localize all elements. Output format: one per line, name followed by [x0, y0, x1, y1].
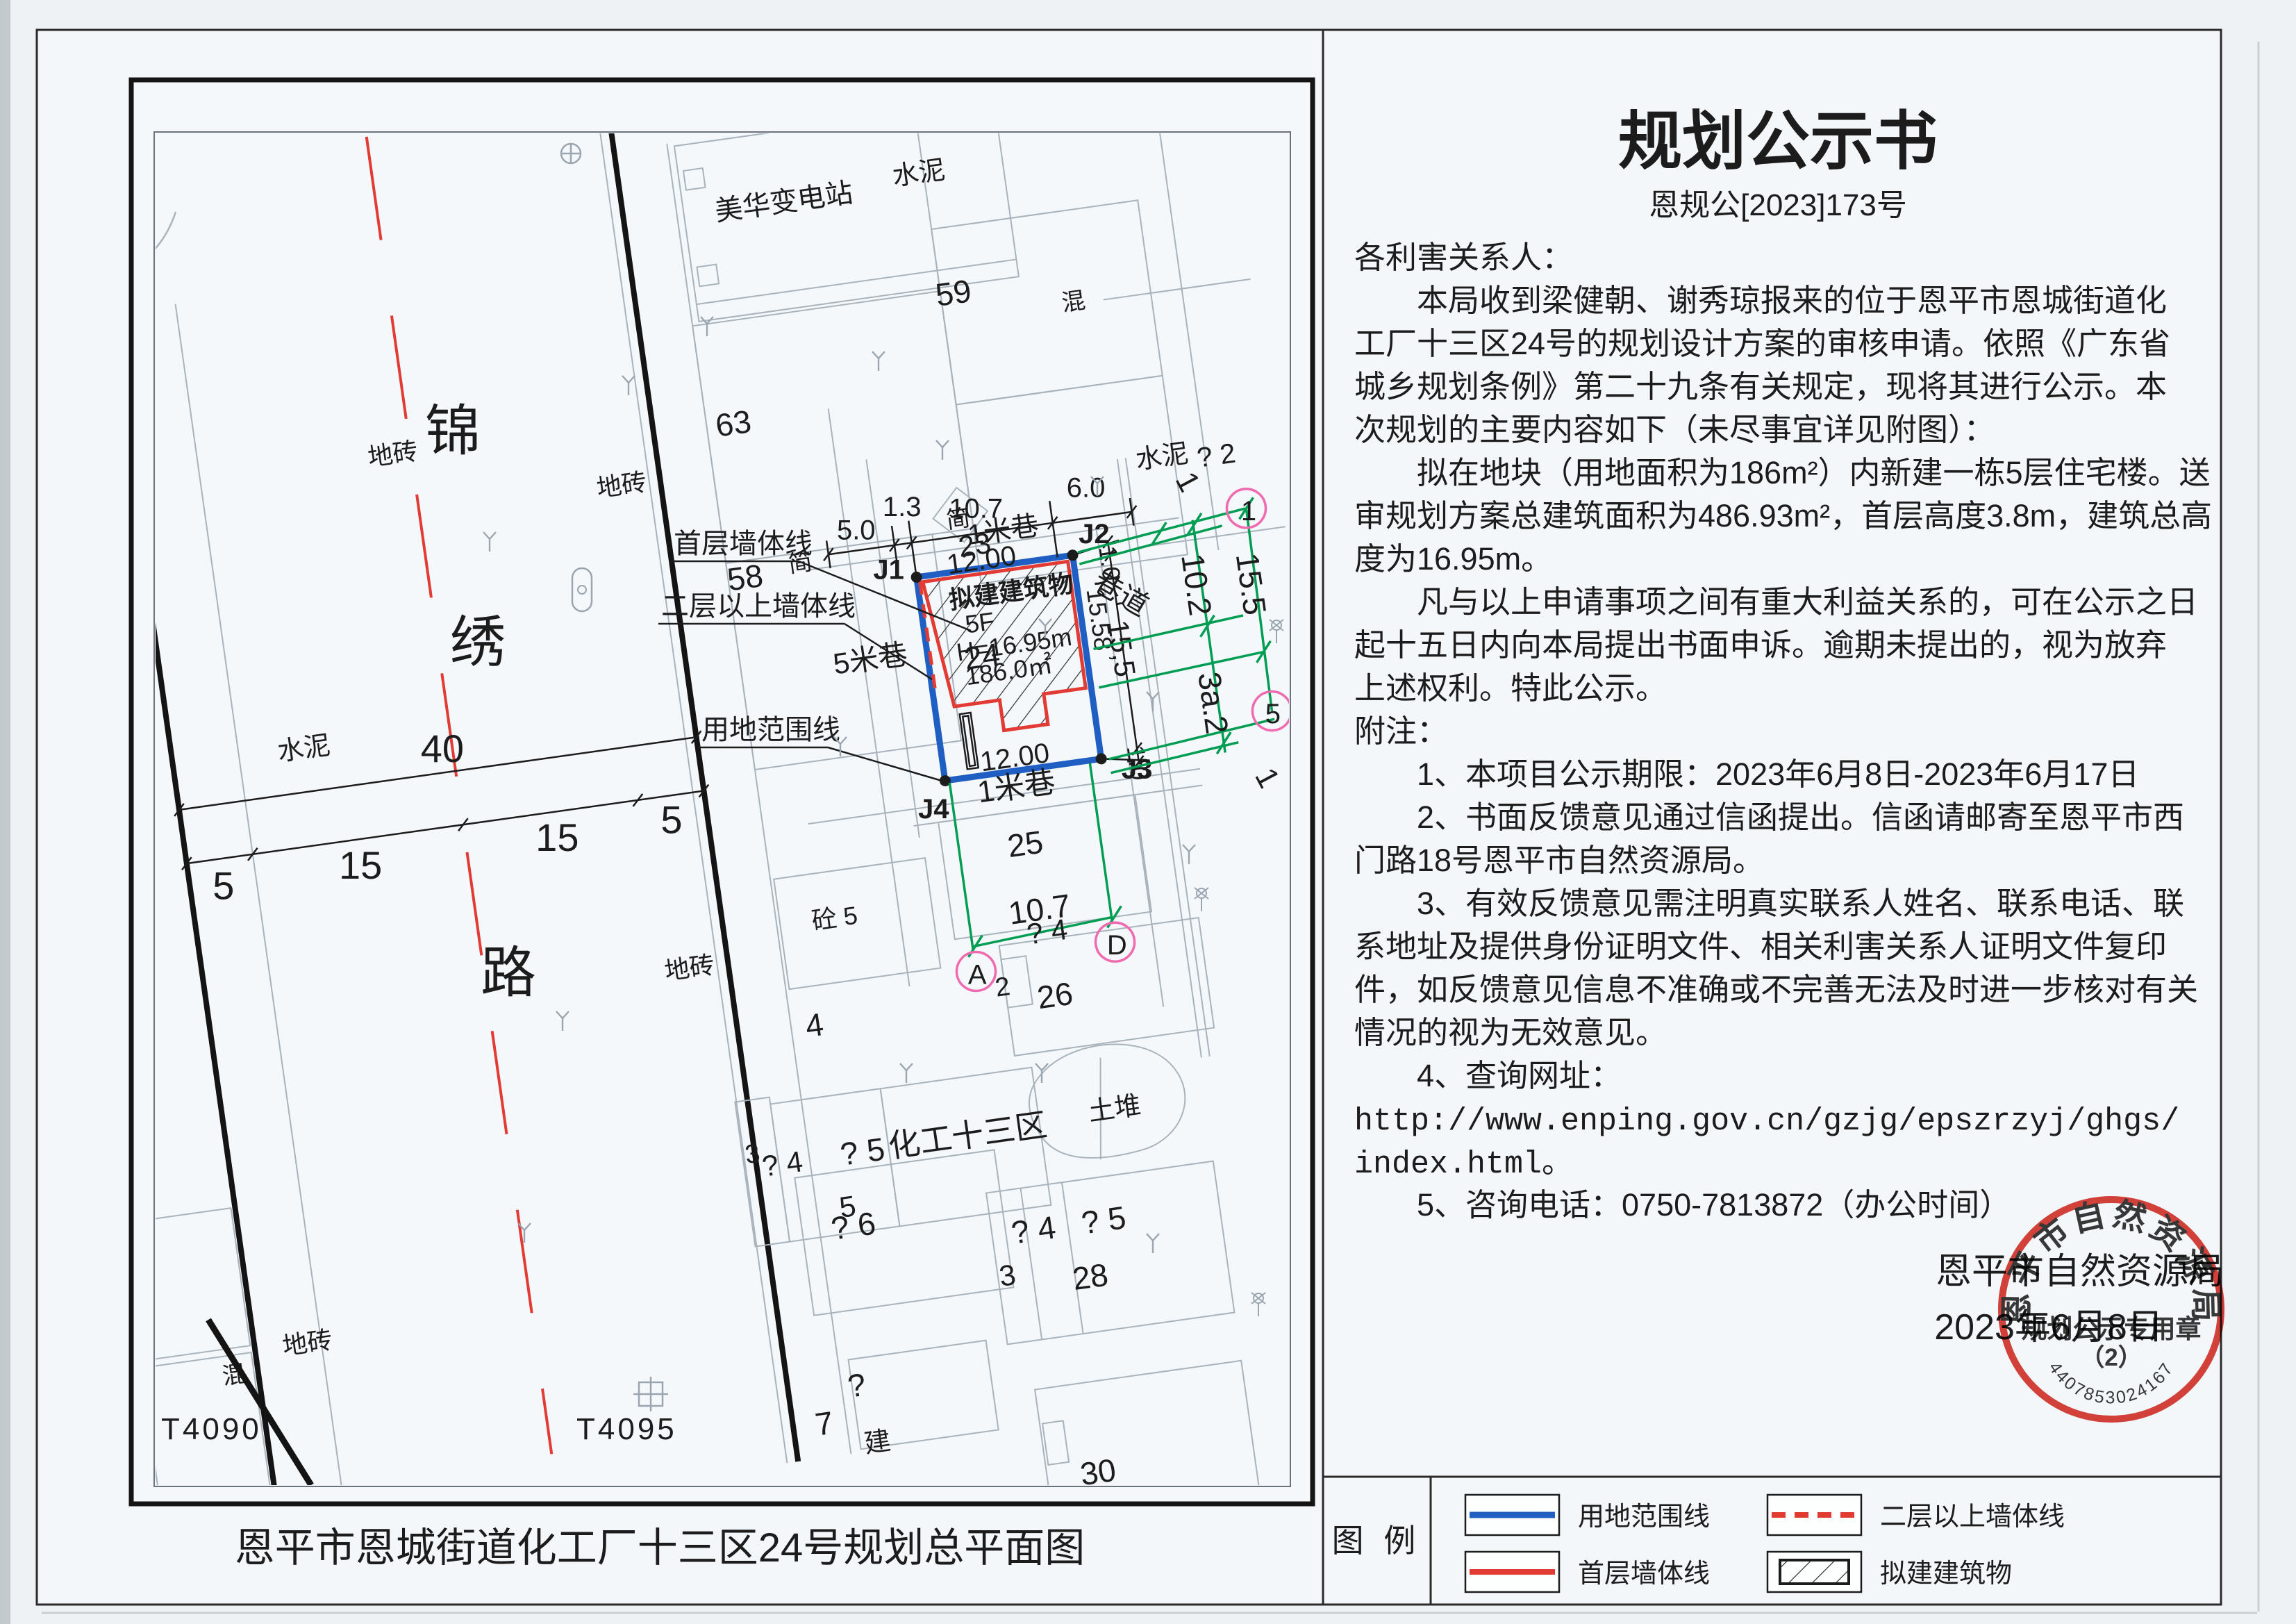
notice-line: http://www.enping.gov.cn/gzjg/epszrzyj/g… — [1354, 1104, 2179, 1139]
notice-panel: 规划公示书 恩规公[2023]173号 各利害关系人： 本局收到梁健朝、谢秀琼报… — [1354, 106, 2225, 1419]
dim-top-1: 5.0 — [837, 515, 876, 545]
notice-title: 规划公示书 — [1618, 106, 1938, 177]
map-title: 恩平市恩城街道化工厂十三区24号规划总平面图 — [235, 1525, 1085, 1571]
hun-b: 混 — [1060, 287, 1087, 316]
q5a: ? 5 — [838, 1131, 888, 1173]
legend-label-first-wall: 首层墙体线 — [1578, 1559, 1710, 1589]
road-name-2: 绣 — [450, 611, 506, 673]
scanned-planning-notice: 40 5 15 15 5 — [0, 0, 2296, 1624]
q4a: ? 4 — [1025, 913, 1070, 951]
notice-line: 城乡规划条例》第二十九条有关规定，现将其进行公示。本 — [1354, 369, 2167, 404]
notice-line: 次规划的主要内容如下（未尽事宜详见附图）： — [1354, 412, 1995, 447]
notice-line: 情况的视为无效意见。 — [1354, 1015, 1667, 1050]
notice-line: 审规划方案总建筑面积为486.93m²，首层高度3.8m，建筑总高 — [1354, 498, 2212, 533]
road-dim-w4: 5 — [660, 798, 682, 842]
notice-line: 门路18号恩平市自然资源局。 — [1354, 843, 1764, 878]
road-dim-w1: 5 — [213, 863, 234, 907]
q4c: ? 4 — [1009, 1209, 1058, 1250]
notice-line: 1、本项目公示期限：2023年6月8日-2023年6月17日 — [1354, 756, 2139, 792]
notice-line: 附注： — [1354, 713, 1448, 749]
j1-label: J1 — [873, 555, 904, 586]
road-dim-w2: 15 — [339, 843, 382, 887]
callout-boundary: 用地范围线 — [701, 715, 840, 745]
pt-1: 1 — [1241, 496, 1256, 527]
jian-build: 建 — [863, 1426, 892, 1459]
document-art: 40 5 15 15 5 — [0, 0, 2296, 1624]
q6: ? 6 — [829, 1204, 878, 1246]
q5b: ? 5 — [1079, 1199, 1129, 1241]
road-name-1: 锦 — [425, 400, 481, 462]
q2: ? 2 — [1195, 438, 1238, 473]
notice-line: 5、咨询电话：0750-7813872（办公时间） — [1354, 1187, 2011, 1223]
n28: 28 — [1070, 1257, 1110, 1298]
notice-line: 工厂十三区24号的规划设计方案的审核申请。依照《广东省 — [1354, 326, 2170, 361]
notice-line: 本局收到梁健朝、谢秀琼报来的位于恩平市恩城街道化 — [1354, 283, 2167, 318]
legend-label-proposed-building: 拟建建筑物 — [1880, 1559, 2012, 1589]
notice-line: 4、查询网址： — [1354, 1058, 1622, 1093]
n59: 59 — [933, 272, 974, 313]
q4b: ? 4 — [760, 1145, 804, 1183]
pt-a: A — [968, 959, 987, 990]
parcel-24: 24 — [962, 636, 1002, 677]
n26: 26 — [1035, 975, 1075, 1016]
pt-5: 5 — [1265, 699, 1281, 729]
legend-title: 图 例 — [1332, 1523, 1422, 1559]
hatched-box-swatch — [1780, 1560, 1849, 1584]
callout-wall1: 首层墙体线 — [674, 529, 813, 559]
j4-label: J4 — [918, 794, 949, 825]
notice-line: 凡与以上申请事项之间有重大利益关系的，可在公示之日 — [1354, 584, 2198, 620]
circle-cross-symbol — [561, 144, 581, 163]
n25: 25 — [1005, 824, 1045, 865]
t4095-marker — [633, 1377, 668, 1411]
notice-line: 起十五日内向本局提出书面申诉。逾期未提出的，视为放弃 — [1354, 627, 2167, 663]
dim-top-2: 1.3 — [883, 492, 922, 522]
t4095: T4095 — [576, 1412, 677, 1446]
dim-top-4: 6.0 — [1067, 473, 1106, 504]
seal-center-line1: 规划公示专用章 — [2022, 1314, 2202, 1343]
seal-center-line2: （2） — [2080, 1344, 2142, 1371]
road-dim-w3: 15 — [535, 815, 579, 859]
callout-wall2: 二层以上墙体线 — [661, 591, 856, 622]
site-plan-map: 40 5 15 15 5 — [0, 0, 1421, 1624]
road-name-3: 路 — [481, 942, 536, 1004]
notice-doc-no: 恩规公[2023]173号 — [1649, 188, 1907, 222]
legend-label-boundary: 用地范围线 — [1578, 1502, 1710, 1532]
notice-line: 度为16.95m。 — [1354, 541, 1552, 577]
notice-line: 拟在地块（用地面积为186m²）内新建一栋5层住宅楼。送 — [1354, 455, 2211, 490]
notice-line: 2、书面反馈意见通过信函提出。信函请邮寄至恩平市西 — [1354, 799, 2184, 835]
n63: 63 — [713, 403, 754, 444]
road-dim-total: 40 — [421, 727, 464, 770]
notice-line: 件，如反馈意见信息不准确或不完善无法及时进一步核对有关 — [1354, 972, 2198, 1007]
notice-line: index.html。 — [1354, 1147, 1573, 1182]
notice-line: 上述权利。特此公示。 — [1354, 670, 1667, 706]
notice-line: 3、有效反馈意见需注明真实联系人姓名、联系电话、联 — [1354, 886, 2184, 921]
notice-line: 系地址及提供身份证明文件、相关利害关系人证明文件复印 — [1354, 929, 2167, 964]
t4090: T4090 — [161, 1412, 262, 1446]
legend-label-upper-wall: 二层以上墙体线 — [1880, 1502, 2065, 1532]
pt-d: D — [1107, 930, 1127, 961]
notice-line: 各利害关系人： — [1354, 240, 1573, 275]
